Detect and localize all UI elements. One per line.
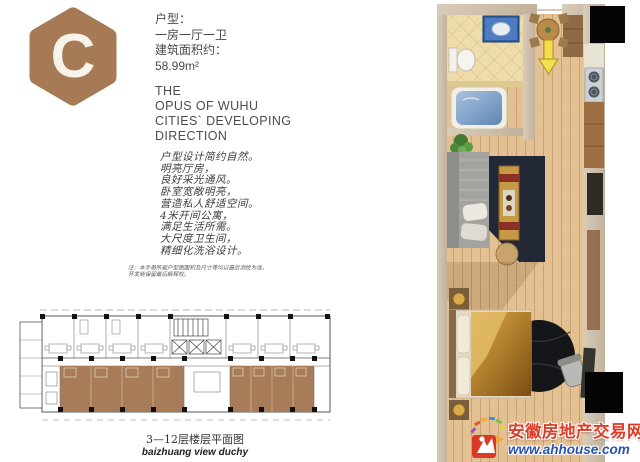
slogan-line: THE <box>155 84 291 99</box>
ottoman <box>496 243 518 265</box>
stairwell-annex <box>20 322 42 408</box>
building-floorplan-diagram <box>14 302 334 428</box>
description-line: 户型设计简约自然。 <box>160 152 259 164</box>
description-line: 精细化洗浴设计。 <box>160 246 259 258</box>
sink-basin <box>492 23 510 36</box>
lamp <box>453 404 465 416</box>
caption-english: baizhuang view duchy <box>110 447 280 459</box>
unit-type-badge: C <box>24 7 122 106</box>
unit-type-value: 一房一厅一卫 <box>155 28 227 44</box>
note-line: 开发商保留最后解释权。 <box>128 272 289 279</box>
tv-cabinet <box>587 173 603 215</box>
bathtub <box>451 87 507 129</box>
site-watermark: 安徽房地产交易网 www.ahhouse.com <box>468 414 640 462</box>
slogan-line: CITIES` DEVELOPING <box>155 114 291 129</box>
living-rug <box>489 156 545 265</box>
brochure-page: C 户型： 一房一厅一卫 建筑面积约： 58.99m² THE OPUS OF … <box>0 0 640 462</box>
highlighted-units-left <box>60 366 184 412</box>
sofa <box>447 152 489 248</box>
description-line: 大尺度卫生间， <box>160 234 259 246</box>
watermark-site-name: 安徽房地产交易网 <box>508 418 640 442</box>
highlighted-units-right <box>230 366 314 412</box>
unit-area-value: 58.99m² <box>155 59 227 75</box>
toilet-tank <box>449 48 457 72</box>
watermark-logo-icon <box>468 416 506 460</box>
pillow <box>457 357 470 395</box>
description-line: 营造私人舒适空间。 <box>160 199 259 211</box>
black-block-top-right <box>590 6 625 43</box>
floorplan-caption: 3—12层楼层平面图 baizhuang view duchy <box>110 431 280 459</box>
unit-description: 户型设计简约自然。 明亮厅房， 良好采光通风。 卧室宽敞明亮， 营造私人舒适空间… <box>160 152 259 257</box>
unit-type-label: 户型： <box>155 12 227 28</box>
pillow <box>457 315 470 353</box>
toilet-bowl <box>457 49 475 71</box>
english-slogan: THE OPUS OF WUHU CITIES` DEVELOPING DIRE… <box>155 84 291 144</box>
watermark-url: www.ahhouse.com <box>508 442 640 457</box>
apartment-render <box>435 0 640 462</box>
note-line: 注：本手册所载户型图面积及尺寸等均以最后测绘为准， <box>128 265 289 272</box>
lamp <box>453 293 465 305</box>
black-block-bottom-right <box>585 372 623 413</box>
sofa-pillow <box>460 223 488 242</box>
caption-chinese: 3—12层楼层平面图 <box>110 431 280 447</box>
unit-area-label: 建筑面积约： <box>155 43 227 59</box>
slogan-line: OPUS OF WUHU <box>155 99 291 114</box>
badge-letter: C <box>24 17 122 97</box>
unit-info-block: 户型： 一房一厅一卫 建筑面积约： 58.99m² <box>155 12 227 74</box>
slogan-line: DIRECTION <box>155 129 291 144</box>
disclaimer-note: 注：本手册所载户型图面积及尺寸等均以最后测绘为准， 开发商保留最后解释权。 <box>128 265 289 279</box>
